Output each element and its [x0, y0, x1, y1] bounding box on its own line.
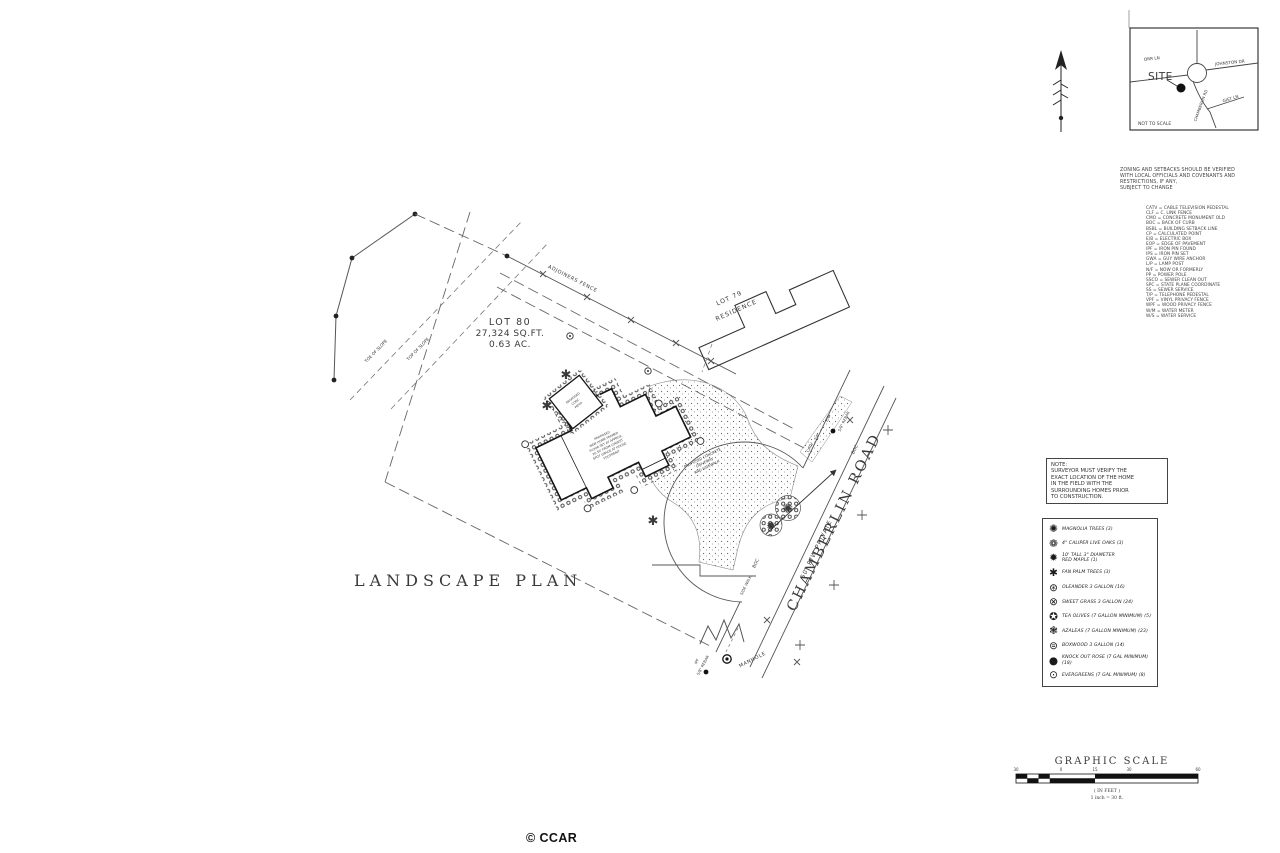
- sheet-title: LANDSCAPE PLAN: [354, 571, 582, 590]
- adjoiners-fence: [505, 254, 736, 374]
- lot80-area-sqft: 27,324 SQ.FT.: [476, 329, 545, 339]
- monument-dot: [350, 256, 355, 261]
- abbreviation-line: W/S = WATER SERVICE: [1146, 314, 1266, 319]
- legend-item: ❃ AZALEAS (7 GALLON MINIMUM) (23): [1045, 624, 1155, 639]
- legend-item: ⊜ BOXWOOD 3 GALLON (14): [1045, 639, 1155, 654]
- note-lines: SURVEYOR MUST VERIFY THEEXACT LOCATION O…: [1051, 468, 1163, 500]
- evergreen-icon: ⊙: [1045, 670, 1062, 680]
- utility-symbols: [567, 333, 651, 374]
- legend-item: ⊛ OLEANDER 3 GALLON (16): [1045, 580, 1155, 595]
- site-plan-drawing: TOE OF SLOPE TOP OF SLOPE ADJOINERS FENC…: [0, 0, 1280, 853]
- legend-item-label: OLEANDER 3 GALLON (16): [1062, 585, 1125, 590]
- boc-label: BOC: [751, 558, 761, 569]
- note-line: TO CONSTRUCTION.: [1051, 494, 1163, 500]
- scale-ratio: 1 inch = 30 ft.: [1091, 795, 1124, 801]
- graphic-scale: GRAPHIC SCALE 30 0 15 30 60 ( IN FEET ) …: [1013, 756, 1201, 801]
- site-label: SITE: [1148, 71, 1173, 83]
- site-dot: [1177, 84, 1186, 93]
- live-oak-icon: ❁: [1045, 539, 1062, 549]
- magnolia-tree-icon: ✺: [1045, 524, 1062, 534]
- abbreviations-list: CATV = CABLE TELEVISION PEDESTALCLF = C.…: [1146, 206, 1266, 319]
- legend-item: ⊙ EVERGREENS (7 GAL MINIMUM) (8): [1045, 668, 1155, 683]
- legend-item-label: EVERGREENS (7 GAL MINIMUM) (8): [1062, 673, 1146, 678]
- landscape-plan-sheet: TOE OF SLOPE TOP OF SLOPE ADJOINERS FENC…: [0, 0, 1280, 853]
- lot79-residence: LOT 79 RESIDENCE: [689, 263, 849, 372]
- not-to-scale-label: NOT TO SCALE: [1138, 121, 1171, 127]
- plant-legend: ✺ MAGNOLIA TREES (3) ❁ 4" CALIPER LIVE O…: [1042, 518, 1158, 687]
- knock-out-rose-icon: ●: [1045, 656, 1062, 666]
- oleander-icon: ⊛: [1045, 583, 1062, 593]
- toe-of-slope-label: TOE OF SLOPE: [363, 338, 388, 364]
- iron-pin-dot: [831, 429, 836, 434]
- bottom-symbols: MANHOLE IPF 5/8" REBAR: [693, 620, 767, 676]
- legend-item: ❁ 4" CALIPER LIVE OAKS (3): [1045, 537, 1155, 552]
- top-of-slope-label: TOP OF SLOPE: [405, 336, 430, 362]
- surveyor-note-box: NOTE: SURVEYOR MUST VERIFY THEEXACT LOCA…: [1046, 458, 1168, 504]
- legend-item-label: MAGNOLIA TREES (3): [1062, 527, 1113, 532]
- lot80-area-acres: 0.63 AC.: [489, 340, 531, 350]
- legend-item-label: AZALEAS (7 GALLON MINIMUM) (23): [1062, 629, 1148, 634]
- scale-tick: 15: [1092, 767, 1098, 772]
- legend-item-label: KNOCK OUT ROSE (7 GAL MINIMUM) (18): [1062, 655, 1155, 666]
- sweet-grass-icon: ⊗: [1045, 597, 1062, 607]
- lot80-label: LOT 80 27,324 SQ.FT. 0.63 AC.: [476, 317, 545, 350]
- fan-palm-icon: ✱: [648, 514, 659, 529]
- fan-palm-icon: ✱: [561, 368, 572, 383]
- vicinity-map: SITE ORR LN JOHNSTON DR CHAMBERLIN RD GI…: [1129, 10, 1258, 130]
- sidewalk-label: SIDE WALK: [739, 574, 753, 595]
- legend-item-label: 4" CALIPER LIVE OAKS (3): [1062, 541, 1124, 546]
- legend-item: ✹ 10' TALL 3" DIAMETER RED MAPLE (1): [1045, 551, 1155, 566]
- copyright-credit: © CCAR: [526, 831, 577, 845]
- legend-item: ✱ FAN PALM TREES (3): [1045, 566, 1155, 581]
- fan-palm-icon: ✱: [542, 399, 553, 414]
- scale-units: ( IN FEET ): [1094, 787, 1120, 794]
- legend-item-label: SWEET GRASS 3 GALLON (24): [1062, 600, 1133, 605]
- legend-item: ● KNOCK OUT ROSE (7 GAL MINIMUM) (18): [1045, 653, 1155, 668]
- scale-tick: 30: [1126, 767, 1132, 772]
- scale-tick: 0: [1060, 767, 1063, 772]
- west-boundary: [332, 212, 418, 383]
- scale-tick: 30: [1013, 767, 1019, 772]
- graphic-scale-title: GRAPHIC SCALE: [1055, 756, 1170, 767]
- boxwood-icon: ⊜: [1045, 641, 1062, 651]
- manhole-label: MANHOLE: [738, 651, 767, 670]
- tea-olive-icon: ✪: [1045, 612, 1062, 622]
- legend-item-label: TEA OLIVES (7 GALLON MINIMUM) (5): [1062, 614, 1151, 619]
- red-maple-icon: ✹: [1045, 553, 1062, 563]
- legend-item-label: BOXWOOD 3 GALLON (14): [1062, 643, 1125, 648]
- scale-tick: 60: [1195, 767, 1201, 772]
- zoning-note: ZONING AND SETBACKS SHOULD BE VERIFIEDWI…: [1120, 168, 1272, 192]
- lot80-name: LOT 80: [489, 317, 531, 328]
- iron-pin-dot: [704, 670, 709, 675]
- slope-lines: [350, 220, 549, 409]
- legend-item-label: 10' TALL 3" DIAMETER RED MAPLE (1): [1062, 553, 1115, 564]
- monument-dot: [505, 254, 510, 259]
- monument-dot: [332, 378, 337, 383]
- magnolia-tree-icon: ✺: [783, 502, 794, 517]
- north-arrow: [1053, 50, 1068, 132]
- ipf-label: IPF: [693, 658, 700, 665]
- fan-palm-icon: ✱: [1045, 568, 1062, 578]
- manhole-icon-center: [725, 657, 728, 660]
- monument-dot: [334, 314, 339, 319]
- legend-item: ✺ MAGNOLIA TREES (3): [1045, 522, 1155, 537]
- azalea-icon: ❃: [1045, 626, 1062, 636]
- zoning-note-line: SUBJECT TO CHANGE: [1120, 186, 1272, 192]
- legend-item: ✪ TEA OLIVES (7 GALLON MINIMUM) (5): [1045, 610, 1155, 625]
- legend-item: ⊗ SWEET GRASS 3 GALLON (24): [1045, 595, 1155, 610]
- legend-item-label: FAN PALM TREES (3): [1062, 570, 1111, 575]
